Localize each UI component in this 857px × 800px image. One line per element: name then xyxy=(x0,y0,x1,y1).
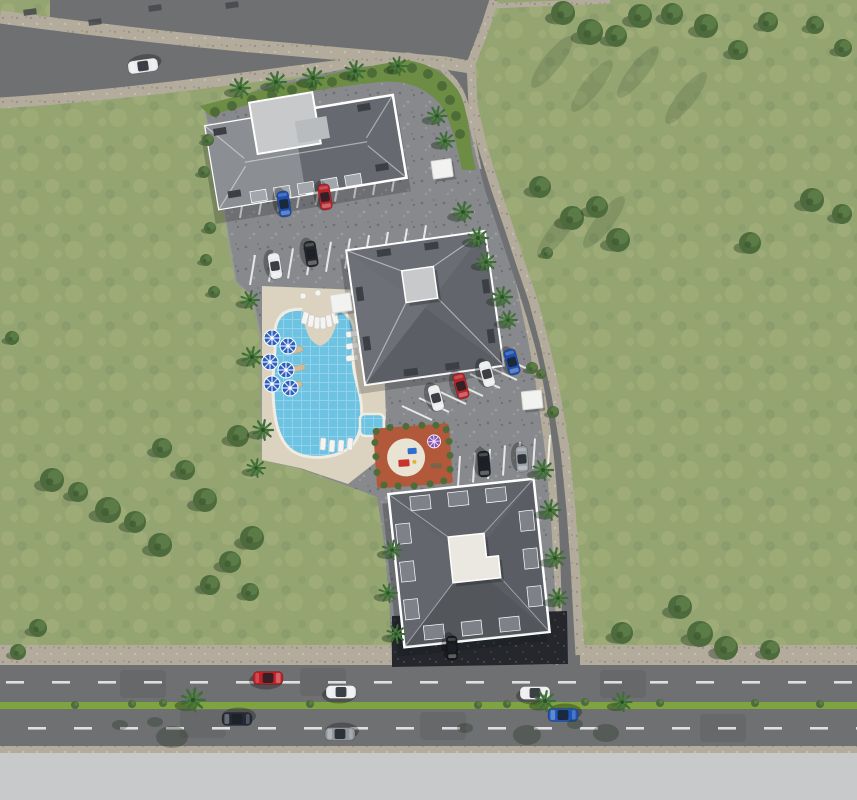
hedge-bush xyxy=(407,63,417,73)
hedge-bush xyxy=(327,77,337,87)
lane-dash xyxy=(810,727,828,730)
playground xyxy=(370,420,455,492)
lane-dash xyxy=(282,681,300,684)
median-plant xyxy=(159,699,167,707)
tree-shadow xyxy=(567,719,583,729)
playground-bench xyxy=(431,463,442,469)
lane-dash xyxy=(834,681,852,684)
hedge-bush xyxy=(455,129,465,139)
sun-lounger xyxy=(314,317,320,329)
road-wear-patch xyxy=(120,670,166,698)
tree-shadow xyxy=(112,720,128,730)
car-road-red xyxy=(249,672,283,690)
hedge-bush xyxy=(437,81,447,91)
entrance-canopy xyxy=(330,292,355,316)
aerial-site-plan: Aerial 3D render of a residential site p… xyxy=(0,0,857,800)
lane-dash xyxy=(144,681,162,684)
tree-shadow xyxy=(457,723,473,733)
median-plant xyxy=(816,700,824,708)
lane-dash xyxy=(74,727,92,730)
pool-umbrella xyxy=(282,380,298,396)
lane-dash xyxy=(650,681,668,684)
lane-dash xyxy=(28,727,46,730)
lane-dash xyxy=(718,727,736,730)
hedge-bush xyxy=(445,95,455,105)
sun-lounger xyxy=(338,440,344,452)
lane-dash xyxy=(190,681,208,684)
play-equipment-blue xyxy=(407,448,416,455)
building-2-roof-core xyxy=(402,266,438,302)
lane-dash xyxy=(98,681,116,684)
lane-dash xyxy=(604,681,622,684)
hedge-bush xyxy=(210,107,220,117)
lane-dash xyxy=(742,681,760,684)
entrance-canopy xyxy=(431,158,456,182)
lane-dash xyxy=(6,681,24,684)
lane-dash xyxy=(52,681,70,684)
hedge-bush xyxy=(227,101,237,111)
lane-dash xyxy=(374,681,392,684)
pool-umbrella xyxy=(278,362,294,378)
pool-umbrella xyxy=(264,376,280,392)
lane-dash xyxy=(328,681,346,684)
lane-dash xyxy=(466,681,484,684)
pool-table xyxy=(300,293,306,299)
sun-lounger xyxy=(329,440,335,452)
bottom-sidewalk xyxy=(0,753,857,800)
median-plant xyxy=(128,700,136,708)
sun-lounger xyxy=(320,438,326,450)
median-plant xyxy=(306,700,314,708)
car-road-blue xyxy=(548,704,582,722)
lane-dash xyxy=(396,727,414,730)
pool-umbrella xyxy=(264,330,280,346)
playground-umbrella-purple xyxy=(427,434,441,448)
car-road-white-1 xyxy=(322,686,356,704)
lane-dash xyxy=(304,727,322,730)
sun-lounger xyxy=(347,438,353,450)
building-3 xyxy=(381,479,550,657)
lane-dash xyxy=(488,727,506,730)
median-plant xyxy=(474,701,482,709)
pool-umbrella xyxy=(280,338,296,354)
play-equipment-red xyxy=(398,459,409,467)
tree-shadow xyxy=(156,726,188,748)
pool-table xyxy=(315,290,321,296)
tree-shadow xyxy=(147,717,163,727)
lane-dash xyxy=(258,727,276,730)
car-road-navy xyxy=(222,708,256,726)
lane-dash xyxy=(420,681,438,684)
lane-dash xyxy=(626,727,644,730)
bottom-road-bottom-curb xyxy=(0,746,857,753)
lane-dash xyxy=(672,727,690,730)
median-plant xyxy=(751,699,759,707)
lane-dash xyxy=(512,681,530,684)
lane-dash xyxy=(696,681,714,684)
hedge-bush xyxy=(423,69,433,79)
median-plant xyxy=(503,700,511,708)
median-plant xyxy=(581,698,589,706)
median-plant xyxy=(71,701,79,709)
site-plan-render: Aerial 3D render of a residential site p… xyxy=(0,0,857,800)
lane-dash xyxy=(788,681,806,684)
sun-lounger xyxy=(320,317,326,329)
hedge-bush xyxy=(287,85,297,95)
lane-dash xyxy=(212,727,230,730)
hedge-bush xyxy=(451,111,461,121)
lane-dash xyxy=(558,681,576,684)
median-plant xyxy=(656,699,664,707)
tree-shadow xyxy=(593,724,619,742)
hedge-bush xyxy=(367,68,377,78)
pool-umbrella xyxy=(262,354,278,370)
entrance-canopy xyxy=(521,390,545,413)
lane-dash xyxy=(764,727,782,730)
tree-shadow xyxy=(513,725,541,745)
car-road-gray xyxy=(325,723,359,741)
